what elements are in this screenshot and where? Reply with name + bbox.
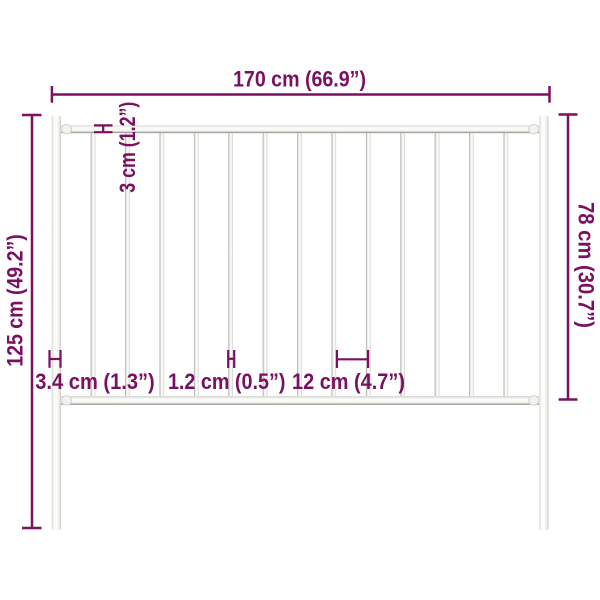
svg-text:1.2 cm (0.5”): 1.2 cm (0.5”) <box>168 369 286 394</box>
svg-text:3.4 cm (1.3”): 3.4 cm (1.3”) <box>35 369 155 394</box>
svg-text:12 cm (4.7”): 12 cm (4.7”) <box>292 369 405 394</box>
svg-text:3 cm (1.2”): 3 cm (1.2”) <box>115 102 140 193</box>
svg-text:170 cm (66.9”): 170 cm (66.9”) <box>233 67 366 92</box>
svg-text:125 cm (49.2”): 125 cm (49.2”) <box>3 234 28 367</box>
svg-text:78 cm (30.7”): 78 cm (30.7”) <box>574 202 599 328</box>
